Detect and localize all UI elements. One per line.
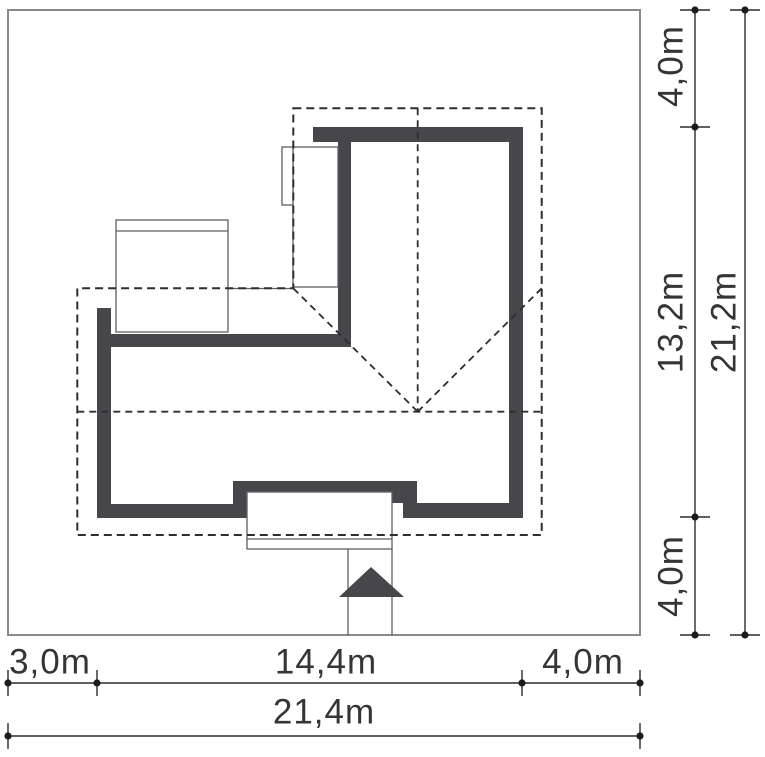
dimension-dot: [691, 513, 698, 520]
dimension-dot: [691, 6, 698, 13]
dim-label-house-width: 14,4m: [275, 645, 377, 680]
house-wall: [97, 308, 111, 518]
porch: [247, 492, 392, 549]
dimension-dot: [518, 679, 525, 686]
dimension-dot: [93, 679, 100, 686]
annex: [293, 147, 338, 287]
house-wall: [390, 481, 417, 503]
dimension-dot: [741, 631, 748, 638]
dim-label-left-offset: 3,0m: [9, 645, 91, 680]
dimension-dot: [741, 6, 748, 13]
dimension-dot: [636, 732, 643, 739]
dimension-dot: [691, 123, 698, 130]
house-wall: [97, 504, 247, 518]
site-plan: 3,0m 14,4m 4,0m 21,4m 4,0m 13,2m 4,0m 21…: [0, 0, 765, 757]
dimension-dot: [4, 732, 11, 739]
dimension-dot: [691, 631, 698, 638]
chimney: [282, 147, 293, 205]
dim-label-house-depth: 13,2m: [654, 271, 689, 373]
dim-label-plot-depth: 21,2m: [707, 271, 742, 373]
dimension-dot: [636, 679, 643, 686]
site-plan-drawing: [0, 0, 765, 757]
house-wall: [403, 503, 523, 518]
dim-label-bottom-offset: 4,0m: [654, 535, 689, 617]
dim-label-plot-width: 21,4m: [273, 695, 375, 730]
dim-label-top-offset: 4,0m: [654, 25, 689, 107]
dim-label-right-offset: 4,0m: [542, 645, 624, 680]
house-wall: [338, 127, 351, 347]
house-wall: [97, 334, 351, 347]
house-wall: [509, 127, 523, 518]
garage: [116, 220, 228, 332]
